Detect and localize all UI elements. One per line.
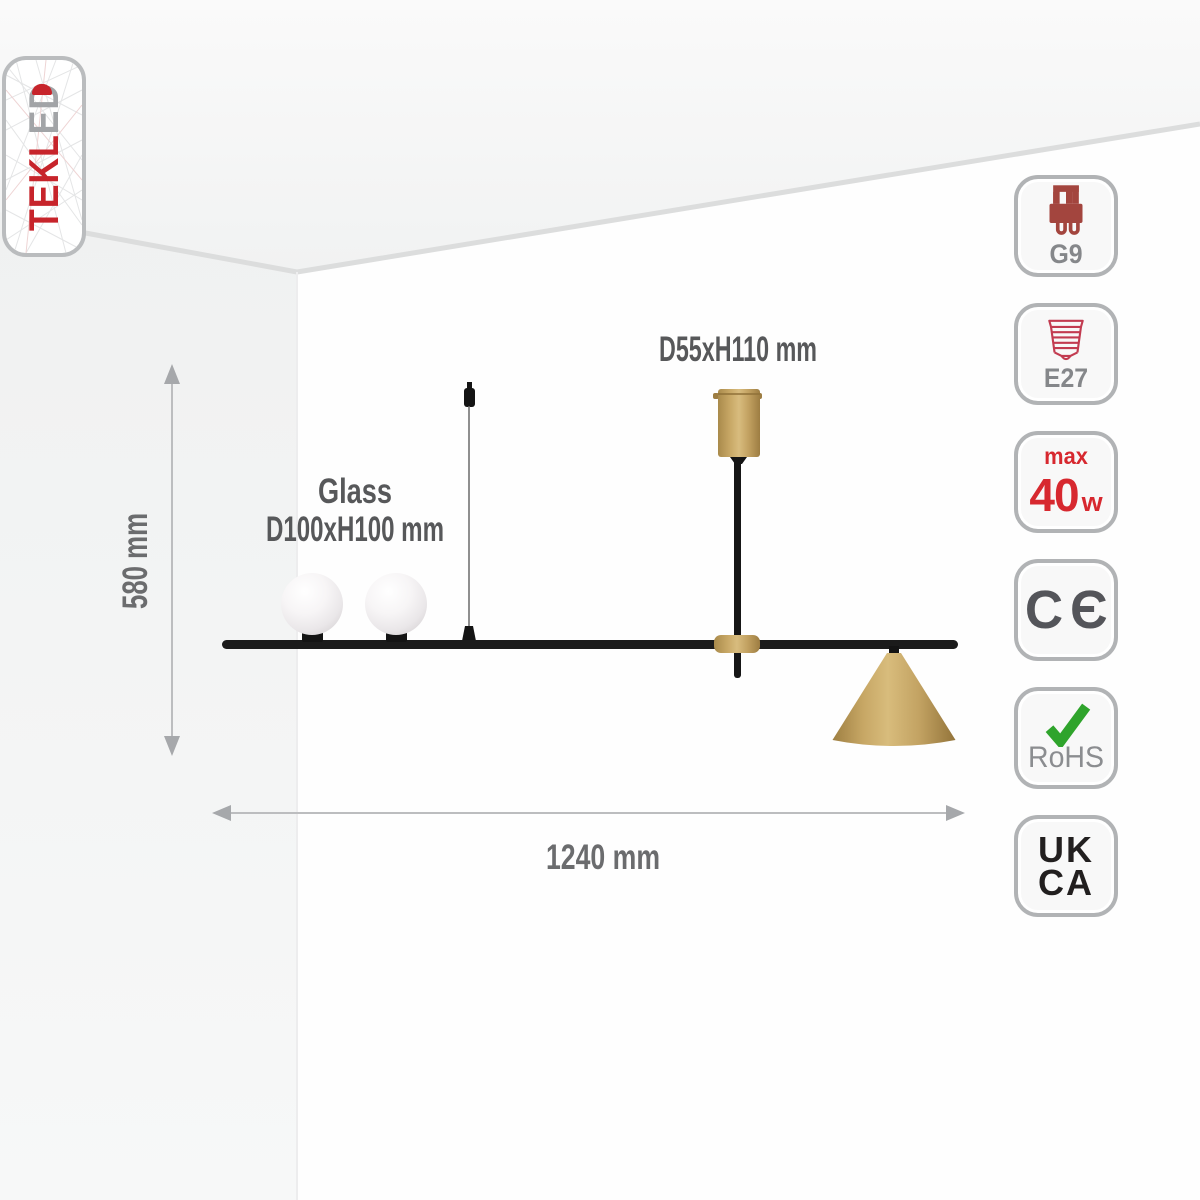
glass-globe [281,573,343,635]
glass-globe [365,573,427,635]
wattage-unit: w [1082,487,1103,518]
rohs-label: RoHS [1028,741,1104,775]
badge-max-wattage: max 40 w [1014,431,1118,533]
logo-wordmark: TEKLED [20,83,68,231]
canopy-dimension-label: D55xH110 mm [659,330,817,369]
glass-dimension-label: D100xH100 mm [266,510,444,549]
canopy-cylinder [718,389,760,457]
arrowhead-left-icon [212,805,231,821]
badge-e27-label: E27 [1044,363,1088,394]
horizontal-bar [222,640,958,649]
wattage-prefix: max [1044,443,1088,470]
e27-screw-base-icon [1043,319,1089,363]
g9-capsule-socket-icon [1044,185,1088,239]
certification-badges: G9 E27 max 40 w CЄ [1014,175,1118,943]
arrowhead-right-icon [946,805,965,821]
bar-sleeve [714,635,760,653]
wire-ceiling-plug [464,388,475,407]
led-dome-icon [32,84,52,95]
badge-e27: E27 [1014,303,1118,405]
ce-mark: CЄ [1025,579,1115,641]
glass-label: Glass [318,472,392,511]
badge-rohs: RoHS [1014,687,1118,789]
badge-g9-label: G9 [1049,239,1082,270]
badge-g9: G9 [1014,175,1118,277]
width-dimension-label: 1240 mm [546,838,660,877]
badge-ce: CЄ [1014,559,1118,661]
product-spec-image: 580 mm 1240 mm D55xH110 mm Glass D100xH1… [0,0,1200,1200]
arrowhead-up-icon [164,364,180,384]
wattage-row: 40 w [1029,468,1102,522]
wire-bar-connector [462,626,476,641]
arrowhead-down-icon [164,736,180,756]
wire-ceiling-pin [467,382,472,389]
tekled-logo-badge: TEKLED [2,56,86,257]
logo-text-red: TEKL [20,134,67,231]
cone-shade [833,653,956,746]
badge-ukca: UK CA [1014,815,1118,917]
ukca-line2: CA [1038,866,1094,899]
wattage-value: 40 [1029,468,1078,522]
ukca-mark: UK CA [1038,833,1094,899]
height-dimension-label: 580 mm [116,513,155,609]
